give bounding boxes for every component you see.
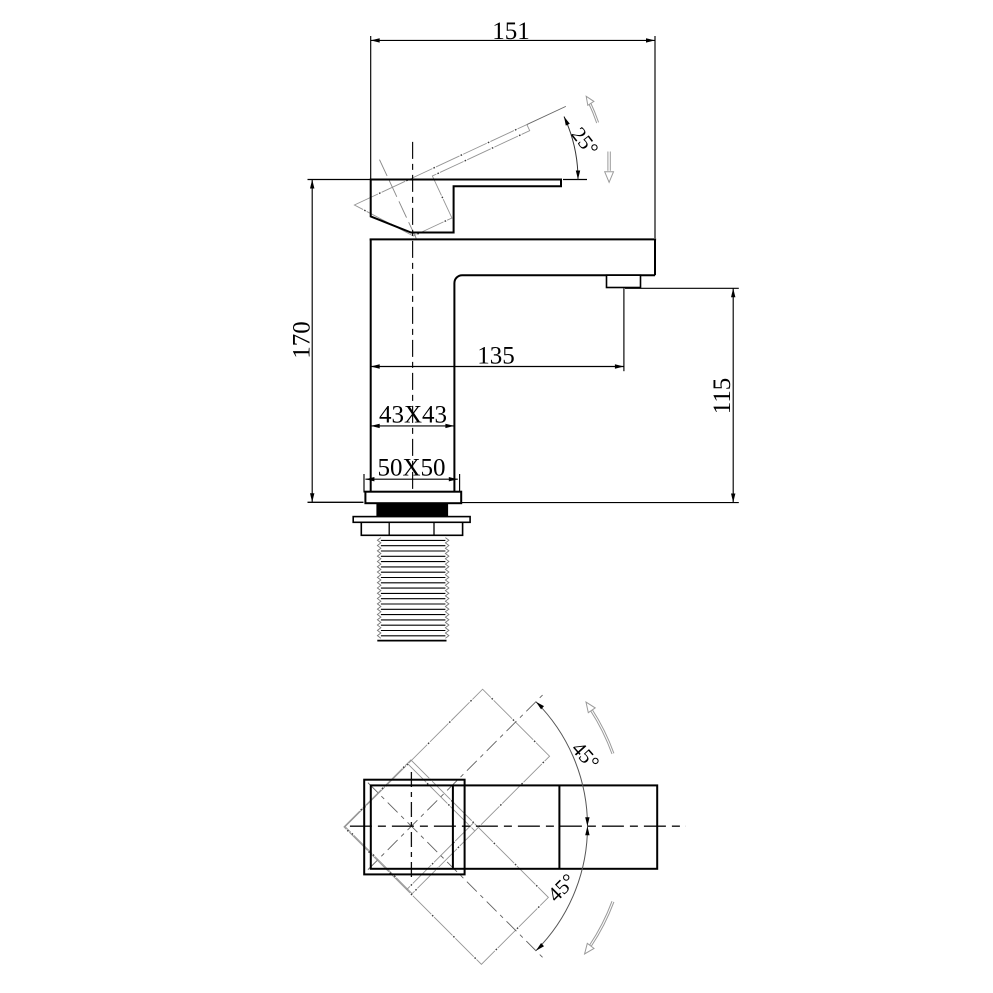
svg-text:50X50: 50X50 (377, 455, 445, 482)
svg-text:170: 170 (289, 321, 316, 359)
svg-text:43X43: 43X43 (379, 402, 447, 429)
svg-text:115: 115 (709, 378, 736, 415)
svg-text:151: 151 (492, 18, 530, 45)
svg-text:135: 135 (477, 343, 515, 370)
